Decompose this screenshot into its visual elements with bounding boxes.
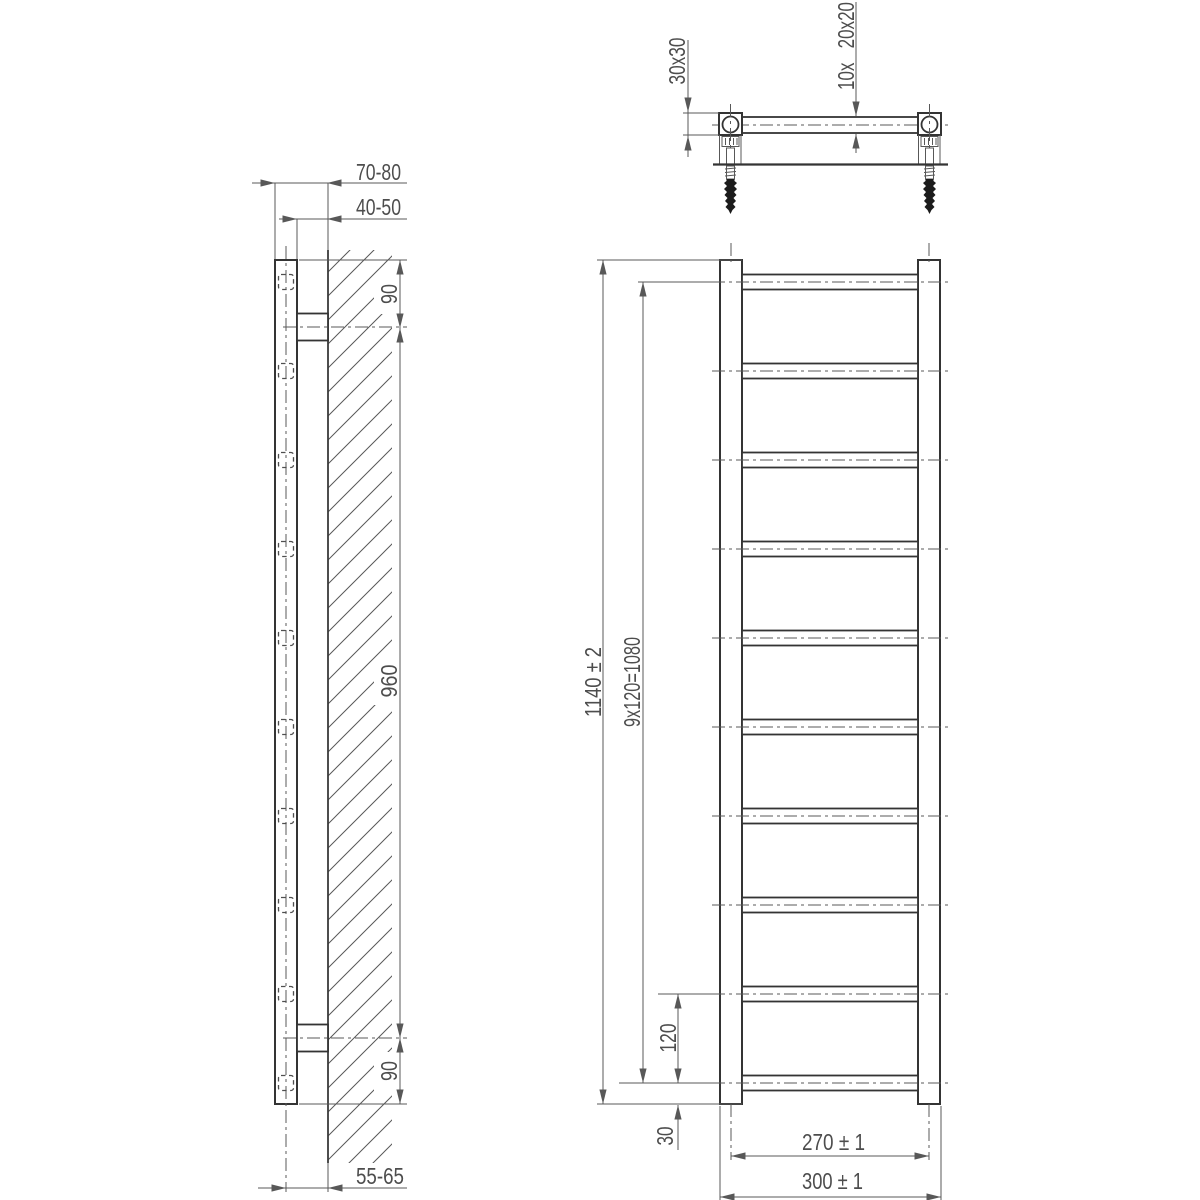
wall-anchor-left: [724, 166, 737, 214]
technical-drawing: 70-80 40-50 90 960 90 55-65: [0, 0, 1200, 1200]
dim-text-bottom-depth: 55-65: [356, 1163, 404, 1189]
anchor-plug-icon: [923, 179, 936, 214]
post-left: [720, 260, 742, 1104]
top-view: 30x30 10x 20x20: [664, 2, 948, 214]
rungs: [742, 275, 918, 1091]
dim-text-bottom-margin: 30: [652, 1127, 678, 1146]
dim-text-rung-pitch-total: 9x120=1080: [619, 637, 645, 727]
dim-text-width-centers: 270 ± 1: [802, 1129, 865, 1155]
side-view: 70-80 40-50 90 960 90 55-65: [252, 159, 407, 1192]
wall-anchor-right: [923, 166, 936, 214]
screw-shank: [727, 148, 735, 164]
screw-shank: [926, 148, 934, 164]
front-view: 1140 ± 2 9x120=1080 120 30 270 ± 1 300 ±…: [580, 243, 948, 1200]
dim-text-depth-total: 70-80: [356, 159, 401, 185]
dim-text-bracket-span: 960: [376, 665, 402, 698]
dim-text-post-section: 30x30: [664, 38, 690, 85]
wall-hatch: [328, 250, 392, 1163]
drawing-page: 70-80 40-50 90 960 90 55-65: [0, 0, 1200, 1200]
dim-text-top-offset: 90: [376, 284, 402, 304]
post-block-right: [918, 104, 941, 164]
dim-text-rung-pitch: 120: [655, 1024, 681, 1053]
dim-text-height: 1140 ± 2: [580, 647, 606, 717]
dim-text-width-overall: 300 ± 1: [802, 1168, 863, 1194]
post-right: [918, 260, 940, 1104]
dim-text-tube-section: 10x 20x20: [833, 2, 859, 90]
anchor-plug-icon: [724, 179, 737, 214]
rung-centerlines: [712, 282, 948, 1083]
dim-text-depth-gap: 40-50: [356, 194, 401, 220]
post-block-left: [719, 104, 742, 164]
dim-text-bottom-offset: 90: [376, 1061, 402, 1081]
